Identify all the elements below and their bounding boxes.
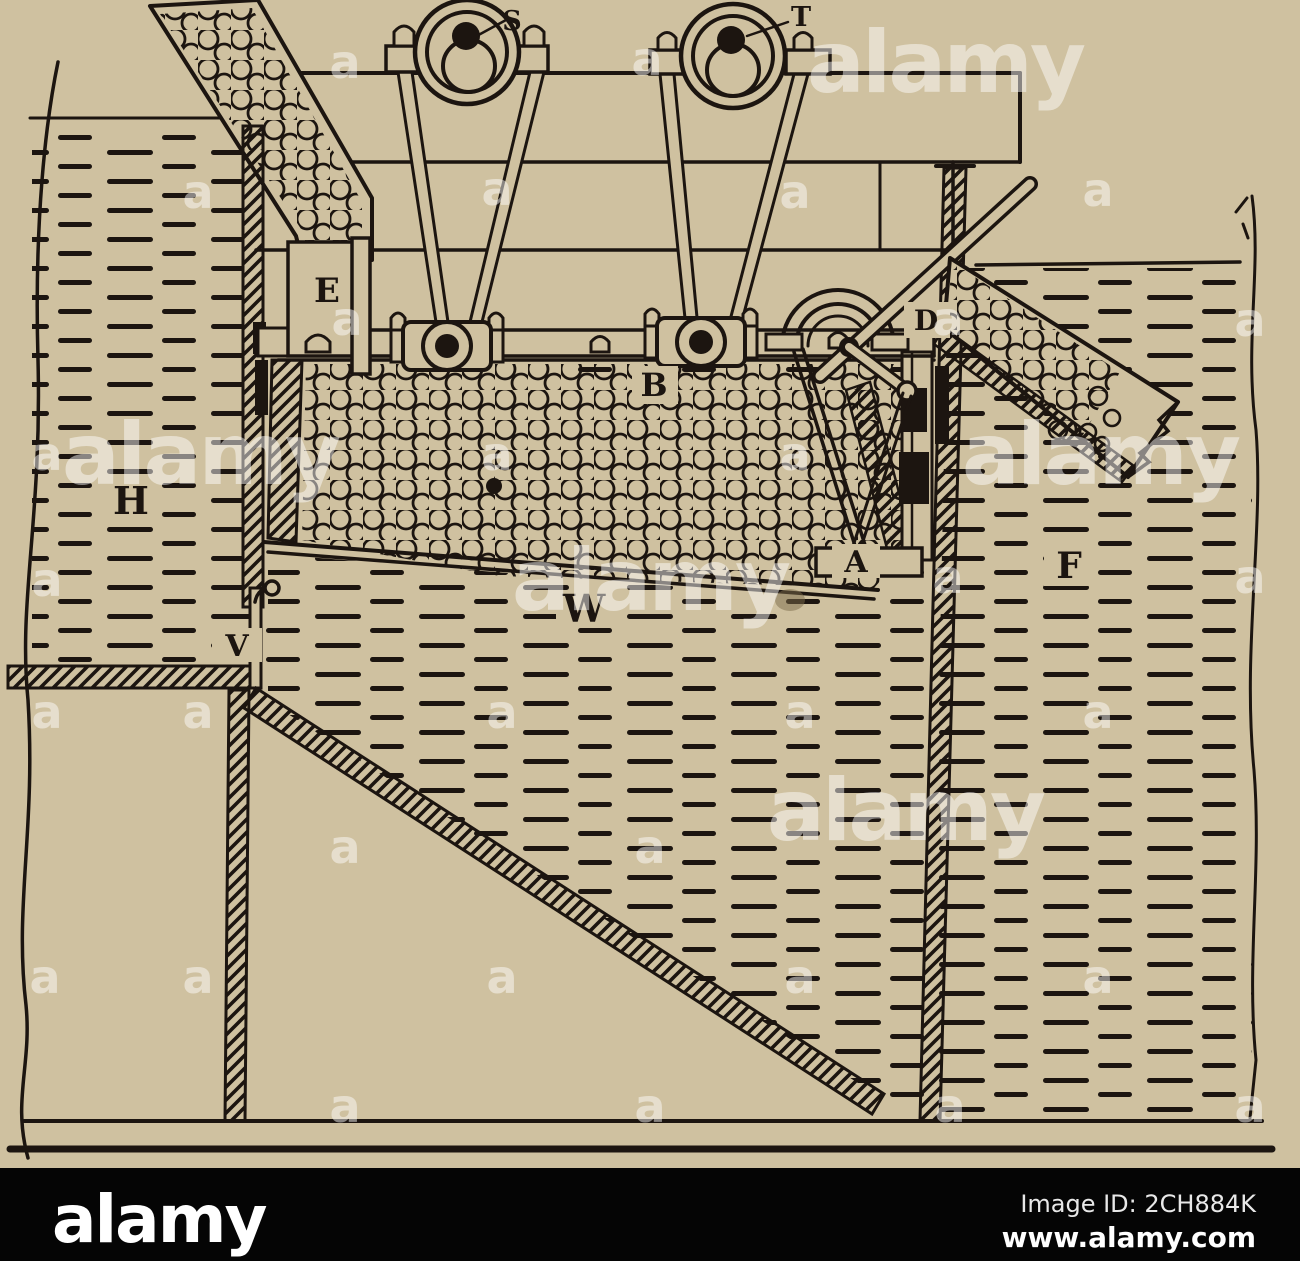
arch-foot-right [872,334,908,350]
watermark-a: a [932,550,963,604]
watermark-a: a [31,685,62,739]
watermark-alamy: alamy [512,531,790,631]
watermark-a: a [182,685,213,739]
scanned-engraving-page: S T E B D H V W A F alamyalamyalamyalamy… [0,0,1300,1261]
alamy-url-text: www.alamy.com [1002,1221,1256,1254]
watermark-a: a [182,950,213,1004]
bracket-bolt [306,335,330,352]
watermark-a: a [932,292,963,346]
bolt [524,26,544,46]
end-seal-lower [899,452,929,504]
clamp-left-pin [435,334,459,358]
clamp-right-pin [689,330,713,354]
watermark-a: a [486,685,517,739]
watermark-a: a [1234,293,1265,347]
watermark-a: a [31,427,62,481]
label-A: A [843,545,868,580]
watermark-a: a [631,32,662,86]
lower-wall-post [225,690,249,1121]
watermark-a: a [634,1079,665,1133]
wall-seal [935,366,949,444]
watermark-a: a [634,820,665,874]
watermark-alamy: alamy [807,13,1085,113]
watermark-a: a [331,292,362,346]
arch-foot-left [766,334,802,350]
watermark-a: a [486,950,517,1004]
footer-bar: alamy Image ID: 2CH884K www.alamy.com [0,1168,1300,1261]
gravel-washer-diagram: S T E B D H V W A F alamyalamyalamyalamy… [0,0,1300,1261]
watermark-a: a [784,950,815,1004]
watermark-alamy: alamy [767,761,1045,861]
label-B: B [640,366,667,404]
label-F: F [1056,545,1082,587]
label-V: V [224,629,249,664]
watermark-a: a [1234,550,1265,604]
watermark-a: a [1082,950,1113,1004]
image-id-text: Image ID: 2CH884K [1020,1190,1257,1218]
watermark-a: a [779,427,810,481]
watermark-a: a [779,165,810,219]
watermark-a: a [1234,1079,1265,1133]
watermark-a: a [481,427,512,481]
watermark-a: a [182,165,213,219]
watermark-a: a [784,685,815,739]
beam-bolt-1 [591,337,609,353]
label-S: S [502,6,522,37]
watermark-alamy: alamy [962,405,1240,505]
shaft-T [717,26,745,54]
watermark-a: a [329,35,360,89]
watermark-a: a [1082,163,1113,217]
watermark-a: a [1082,685,1113,739]
watermark-a: a [934,1079,965,1133]
watermark-alamy: alamy [62,405,340,505]
watermark-a: a [481,162,512,216]
gate-handle-knob [265,581,279,595]
alamy-logo: alamy [52,1181,266,1258]
watermark-a: a [29,950,60,1004]
watermark-a: a [31,553,62,607]
bolt [394,26,414,46]
watermark-a: a [329,1079,360,1133]
watermark-a: a [329,820,360,874]
